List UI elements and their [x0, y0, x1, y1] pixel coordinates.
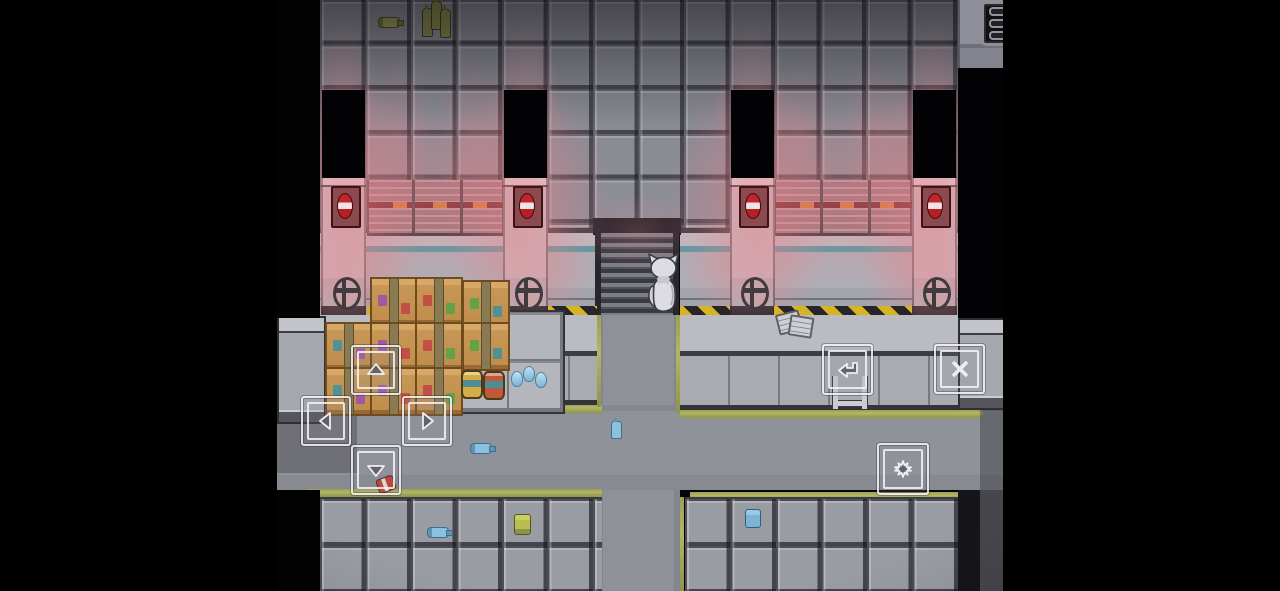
bottle-lying [427, 527, 449, 538]
arrow-down-icon [363, 457, 389, 483]
metal-shelf-grid-bottom-left [320, 497, 602, 591]
dark-zone-right-bottom [958, 490, 1003, 591]
wooden-crate [462, 322, 510, 371]
alarm-light [739, 186, 769, 228]
doorway-opening [322, 90, 365, 178]
hamburger-menu-icon [989, 19, 1003, 28]
shelf-compartment [509, 313, 560, 359]
bottle-standing [611, 421, 622, 439]
button-left[interactable] [301, 396, 351, 446]
wooden-crate [415, 277, 463, 326]
wooden-crate [415, 322, 463, 371]
platform-right [680, 315, 958, 410]
crate-stamp [401, 303, 410, 314]
crate-stamp [333, 385, 342, 396]
metal-shelf-grid-bottom-right [685, 497, 958, 591]
crate-stamp [470, 298, 479, 309]
alarm-light [331, 186, 361, 228]
hamburger-menu-icon [989, 7, 1003, 16]
doorway-opening [731, 90, 774, 178]
valve-wheel-icon [515, 277, 543, 310]
storage-barrel [483, 371, 505, 400]
can-blue [745, 509, 761, 528]
paper-sheet [788, 314, 815, 338]
corridor-edge [680, 497, 684, 591]
scattered-papers [777, 312, 813, 338]
crate-stamp [446, 348, 455, 359]
storage-barrel [461, 370, 483, 399]
button-confirm[interactable] [822, 344, 873, 395]
crate-stamp [493, 306, 502, 317]
crate-stamp [446, 303, 455, 314]
star-burst-icon [890, 456, 916, 482]
button-confirm-frame [828, 350, 867, 389]
valve-wheel-icon [741, 277, 769, 310]
arrow-left-icon [313, 408, 339, 434]
button-cancel[interactable] [934, 344, 985, 394]
roller-shutter [774, 180, 912, 236]
button-down-frame [357, 451, 395, 489]
can-yellow [514, 514, 531, 535]
button-left-frame [307, 402, 345, 440]
water-bottles [511, 366, 547, 388]
button-up[interactable] [351, 345, 401, 395]
hamburger-menu-icon [989, 31, 1003, 40]
button-right-frame [408, 402, 446, 440]
menu-button[interactable] [981, 1, 1003, 46]
corridor-edge [597, 315, 601, 407]
alarm-light [513, 186, 543, 228]
doorway-opening [913, 90, 956, 178]
crate-stamp [401, 348, 410, 359]
bottle-lying [470, 443, 492, 454]
platform-edge-right [680, 410, 983, 418]
game-viewport [277, 0, 1003, 591]
crate-stamp [470, 340, 479, 351]
dark-zone-left-bottom [277, 490, 320, 591]
valve-wheel-icon [333, 277, 361, 310]
dark-zone-left [277, 0, 320, 318]
crate-stamp [423, 295, 432, 306]
arrow-right-icon [414, 408, 440, 434]
valve-wheel-icon [923, 277, 951, 310]
water-drop-bottle [535, 372, 547, 388]
water-drop-bottle [523, 366, 535, 382]
button-up-frame [357, 351, 395, 389]
button-settings-frame [883, 449, 923, 489]
button-right[interactable] [402, 396, 452, 446]
doorway-opening [504, 90, 547, 178]
arrow-up-icon [363, 357, 389, 383]
water-drop-bottle [511, 371, 523, 387]
button-settings[interactable] [877, 443, 929, 495]
roller-shutter [367, 180, 504, 236]
button-down[interactable] [351, 445, 401, 495]
button-cancel-frame [940, 350, 979, 388]
alarm-light [921, 186, 951, 228]
return-arrow-icon [835, 357, 861, 383]
crate-stamp [493, 348, 502, 359]
player-character-cat [645, 251, 682, 313]
x-icon [947, 356, 973, 382]
crate-stamp [378, 295, 387, 306]
wooden-crate [370, 277, 418, 326]
crate-stamp [333, 340, 342, 351]
crate-stamp [423, 385, 432, 396]
top-vignette [320, 0, 958, 125]
dark-zone-right [958, 68, 1003, 318]
crate-stamp [423, 340, 432, 351]
